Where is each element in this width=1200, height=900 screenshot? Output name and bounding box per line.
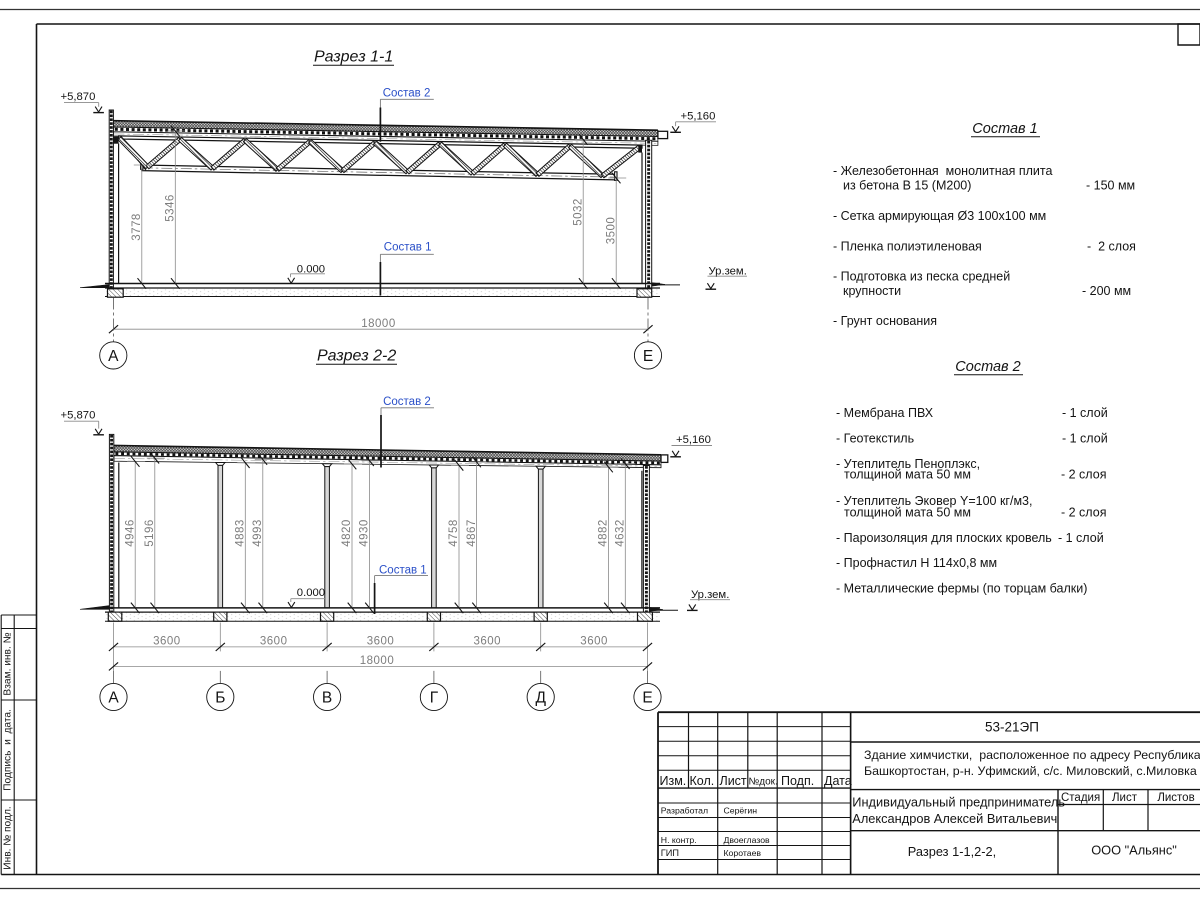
svg-text:Ур.зем.: Ур.зем. [691,589,729,601]
svg-text:4820: 4820 [341,519,353,547]
svg-text:Разрез 2-2: Разрез 2-2 [317,348,396,365]
svg-text:+5,870: +5,870 [61,91,96,103]
svg-text:- 2 слоя: - 2 слоя [1087,240,1136,254]
svg-text:Состав 2: Состав 2 [383,87,431,99]
svg-text:Здание химчистки, расположенн: Здание химчистки, расположенное по адрес… [864,748,1200,762]
svg-text:Башкортостан, р-н. Уфимский, с: Башкортостан, р-н. Уфимский, с/с. Миловс… [864,764,1197,778]
svg-text:Лист: Лист [1112,792,1138,804]
svg-text:Изм.: Изм. [660,774,687,788]
svg-text:Разрез 1-1: Разрез 1-1 [314,49,393,66]
svg-text:Взам. инв. №: Взам. инв. № [2,632,13,695]
svg-text:- 1 слой: - 1 слой [1058,531,1104,545]
svg-text:Разработал: Разработал [661,806,708,816]
svg-text:Подпись и дата.: Подпись и дата. [2,709,13,791]
svg-text:Двоеглазов: Двоеглазов [724,835,771,845]
svg-text:Состав 1: Состав 1 [972,121,1037,137]
svg-text:3600: 3600 [153,636,181,648]
svg-text:ГИП: ГИП [661,848,679,858]
svg-text:- Пленка полиэтиленовая: - Пленка полиэтиленовая [833,240,982,254]
svg-text:+5,160: +5,160 [681,110,716,122]
svg-text:Б: Б [215,690,225,707]
svg-text:18000: 18000 [360,655,394,667]
svg-text:Е: Е [643,348,653,365]
svg-text:0.000: 0.000 [297,587,325,599]
svg-text:- Металлические фермы (по торц: - Металлические фермы (по торцам балки) [836,582,1087,596]
svg-text:- 2 слоя: - 2 слоя [1061,468,1106,482]
svg-text:А: А [108,690,119,707]
svg-text:Состав 1: Состав 1 [379,564,427,576]
svg-text:4883: 4883 [235,519,247,547]
svg-text:53-21ЭП: 53-21ЭП [985,720,1039,735]
svg-text:Ур.зем.: Ур.зем. [709,265,747,277]
svg-text:- 200 мм: - 200 мм [1082,284,1131,298]
svg-text:- 1 слой: - 1 слой [1062,432,1108,446]
svg-text:Дата: Дата [824,774,852,788]
svg-text:4632: 4632 [615,519,627,547]
svg-text:3778: 3778 [131,213,143,241]
svg-text:Инв. № подл.: Инв. № подл. [2,806,13,869]
svg-text:- 150 мм: - 150 мм [1086,179,1135,193]
svg-text:3500: 3500 [605,217,617,245]
svg-text:- 2 слоя: - 2 слоя [1061,506,1106,520]
svg-text:В: В [322,690,332,707]
svg-text:Александров Алексей Витальевич: Александров Алексей Витальевич [852,811,1057,826]
svg-text:№док.: №док. [749,776,778,787]
svg-text:4993: 4993 [252,519,264,547]
svg-text:из бетона В 15 (М200): из бетона В 15 (М200) [843,179,971,193]
svg-text:Состав 1: Состав 1 [384,241,432,253]
svg-text:крупности: крупности [843,284,901,298]
svg-text:Серёгин: Серёгин [724,806,758,816]
svg-text:4867: 4867 [466,519,478,547]
svg-text:- Грунт основания: - Грунт основания [833,314,937,328]
svg-text:- Подготовка из песка средней: - Подготовка из песка средней [833,270,1010,284]
svg-text:Лист: Лист [720,774,747,788]
svg-text:Д: Д [535,690,546,707]
svg-text:Кол.: Кол. [690,774,715,788]
svg-text:- Пароизоляция для плоских кро: - Пароизоляция для плоских кровель [836,531,1052,545]
svg-text:Листов: Листов [1157,792,1194,804]
svg-text:- Мембрана ПВХ: - Мембрана ПВХ [836,406,934,420]
svg-text:5346: 5346 [165,194,177,222]
svg-text:толщиной мата 50 мм: толщиной мата 50 мм [844,506,971,520]
svg-text:Н. контр.: Н. контр. [661,835,697,845]
svg-text:Состав 2: Состав 2 [383,396,431,408]
svg-text:18000: 18000 [361,318,395,330]
svg-text:+5,160: +5,160 [676,434,711,446]
svg-text:5196: 5196 [144,519,156,547]
svg-text:- Профнастил Н 114х0,8 мм: - Профнастил Н 114х0,8 мм [836,556,997,570]
svg-text:толщиной мата 50 мм: толщиной мата 50 мм [844,468,971,482]
svg-text:3600: 3600 [580,636,608,648]
svg-text:+5,870: +5,870 [61,410,96,422]
svg-text:Коротаев: Коротаев [724,848,762,858]
svg-text:ООО "Альянс": ООО "Альянс" [1091,843,1177,858]
svg-text:- Железобетонная монолитная п: - Железобетонная монолитная плита [833,164,1052,178]
svg-text:4758: 4758 [448,519,460,547]
svg-text:Подп.: Подп. [781,774,814,788]
svg-text:Е: Е [642,690,652,707]
svg-text:Индивидуальный предприниматель: Индивидуальный предприниматель [852,794,1065,809]
svg-text:3600: 3600 [260,636,288,648]
svg-text:Г: Г [430,690,439,707]
svg-text:3600: 3600 [474,636,502,648]
svg-text:Стадия: Стадия [1061,792,1100,804]
svg-text:А: А [108,348,119,365]
svg-text:- Геотекстиль: - Геотекстиль [836,432,914,446]
svg-text:Состав 2: Состав 2 [955,359,1020,375]
svg-text:4946: 4946 [124,519,136,547]
svg-text:Разрез 1-1,2-2,: Разрез 1-1,2-2, [908,844,996,859]
svg-text:5032: 5032 [572,198,584,226]
svg-text:- Сетка армирующая Ø3 100х100: - Сетка армирующая Ø3 100х100 мм [833,209,1046,223]
svg-text:3600: 3600 [367,636,395,648]
svg-text:4930: 4930 [359,519,371,547]
svg-text:- 1 слой: - 1 слой [1062,406,1108,420]
svg-text:4882: 4882 [598,519,610,547]
